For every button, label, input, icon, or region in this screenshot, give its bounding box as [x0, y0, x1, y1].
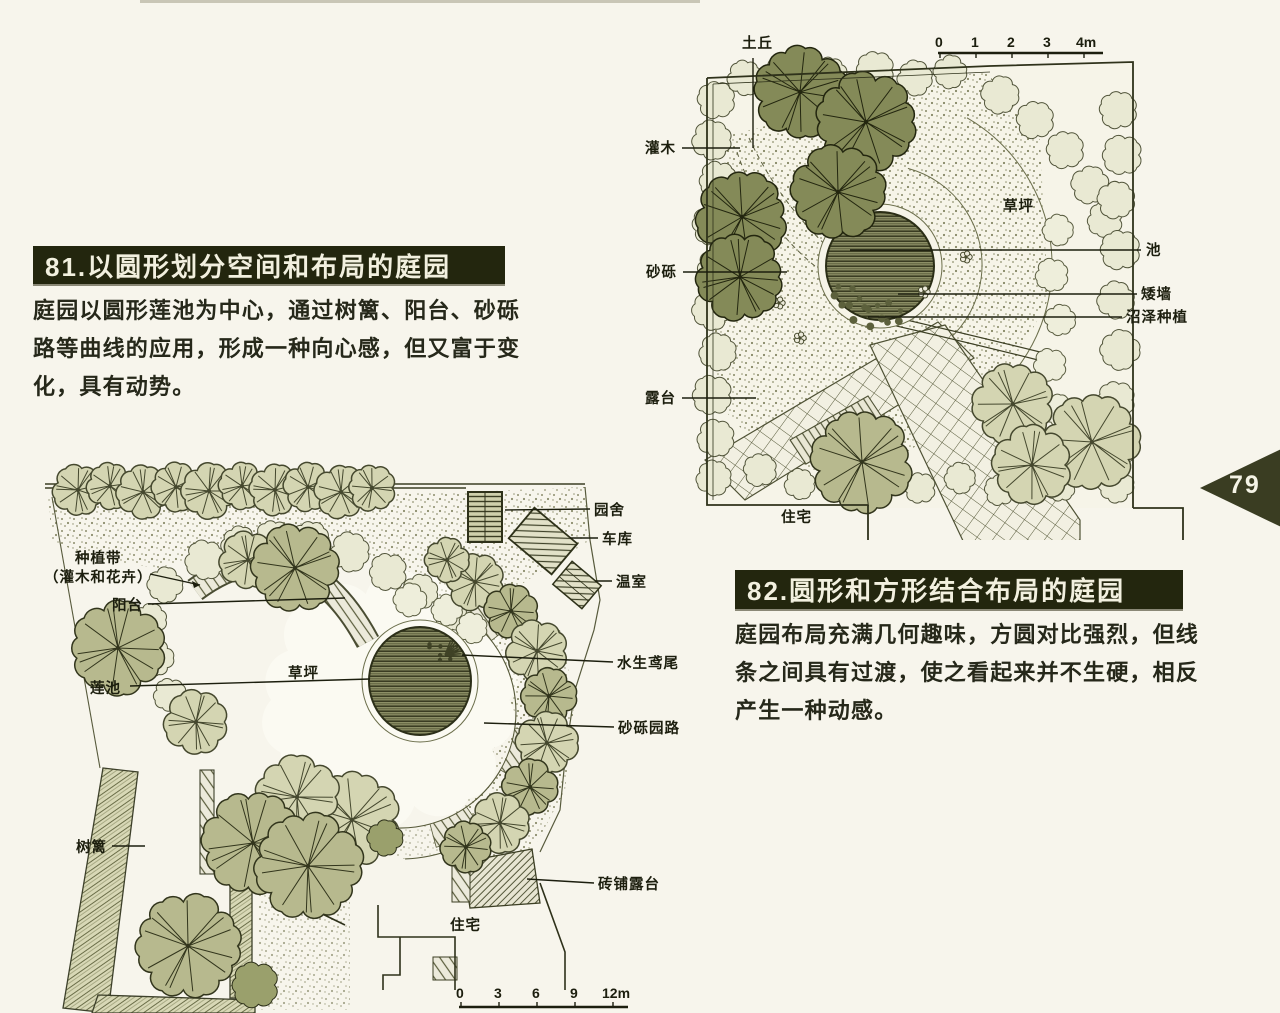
- label-garage: 车库: [602, 530, 633, 548]
- paragraph-line: 庭园布局充满几何趣味，方圆对比强烈，但线: [735, 616, 1200, 654]
- scale-tick: 3: [494, 985, 502, 1001]
- label-planting-belt-2: （灌木和花卉）: [44, 568, 153, 586]
- paragraph-line: 产生一种动感。: [735, 692, 1200, 730]
- section-82-paragraph: 庭园布局充满几何趣味，方圆对比强烈，但线 条之间具有过渡，使之看起来并不生硬，相…: [735, 616, 1200, 730]
- label-cottage: 园舍: [594, 501, 625, 519]
- diagram-82-artwork: [45, 462, 601, 1013]
- page-number: 79: [1229, 471, 1261, 500]
- label-marsh: 沼泽种植: [1126, 308, 1188, 326]
- label-greenhouse: 温室: [616, 573, 647, 591]
- scale-tick: 2: [1007, 34, 1015, 50]
- scale-tick: 0: [935, 34, 943, 50]
- label-terrace: 露台: [645, 389, 676, 407]
- label-house: 住宅: [450, 916, 481, 934]
- label-brick-terrace: 砖铺露台: [598, 875, 660, 893]
- scan-edge: [140, 0, 700, 3]
- paragraph-line: 庭园以圆形莲池为中心，通过树篱、阳台、砂砾: [33, 292, 578, 330]
- scale-tick: 3: [1043, 34, 1051, 50]
- scale-bar-4m: 0 1 2 3 4m: [935, 34, 1103, 58]
- label-pond: 池: [1146, 241, 1162, 259]
- paragraph-line: 化，具有动势。: [33, 368, 578, 406]
- section-81-title-bar: 81.以圆形划分空间和布局的庭园: [33, 246, 505, 284]
- scale-tick: 1: [971, 34, 979, 50]
- label-planting-belt-1: 种植带: [74, 549, 122, 567]
- label-balcony: 阳台: [112, 596, 143, 614]
- label-low-wall: 矮墙: [1141, 285, 1172, 303]
- paragraph-line: 条之间具有过渡，使之看起来并不生硬，相反: [735, 654, 1200, 692]
- scale-tick: 6: [532, 985, 540, 1001]
- label-shrub: 灌木: [645, 139, 676, 157]
- label-house: 住宅: [781, 508, 812, 526]
- label-iris: 水生鸢尾: [617, 654, 679, 672]
- greenhouse-building: [553, 561, 601, 608]
- label-mound: 土丘: [742, 34, 773, 52]
- tree-icon: [135, 894, 241, 998]
- diagram-82-garden-plan: 种植带 （灌木和花卉） 阳台 莲池 草坪 树篱 园舍 车库 温室 水生鸢尾 砂砾…: [30, 455, 690, 1013]
- scale-tick: 0: [456, 985, 464, 1001]
- label-lawn: 草坪: [1003, 197, 1034, 215]
- section-82-title-bar: 82.圆形和方形结合布局的庭园: [735, 570, 1183, 609]
- label-gravel-path: 砂砾园路: [618, 719, 680, 737]
- section-82-title: 82.圆形和方形结合布局的庭园: [747, 571, 1125, 608]
- paragraph-line: 路等曲线的应用，形成一种向心感，但又富于变: [33, 330, 578, 368]
- page-number-tab: 79: [1200, 448, 1280, 528]
- section-81-title: 81.以圆形划分空间和布局的庭园: [45, 247, 451, 284]
- scale-unit: 4m: [1076, 34, 1096, 50]
- diagram-81-garden-plan: 土丘 灌木 砂砾 露台 住宅 草坪 池 矮墙 沼泽种植 0 1 2 3 4m: [620, 10, 1190, 540]
- section-81-paragraph: 庭园以圆形莲池为中心，通过树篱、阳台、砂砾 路等曲线的应用，形成一种向心感，但又…: [33, 292, 578, 406]
- label-lawn: 草坪: [288, 664, 319, 682]
- scale-bar-12m: 0 3 6 9 12m: [456, 985, 630, 1007]
- tree-icon: [349, 465, 395, 511]
- label-gravel: 砂砾: [646, 263, 677, 281]
- label-lotus-pond: 莲池: [90, 679, 121, 697]
- tree-icon: [163, 690, 226, 754]
- leader-cottage: [505, 509, 590, 510]
- scale-tick: 9: [570, 985, 578, 1001]
- diagram-81-artwork: [692, 45, 1183, 540]
- label-hedge: 树篱: [76, 838, 107, 856]
- scale-unit: 12m: [602, 985, 630, 1001]
